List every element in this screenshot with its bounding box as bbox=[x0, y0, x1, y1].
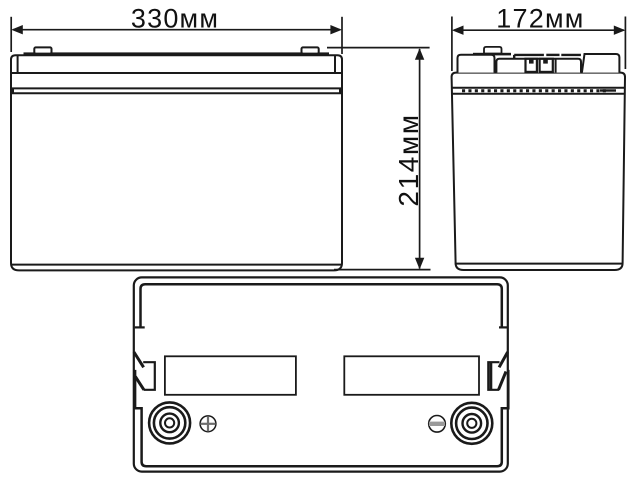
svg-text:330мм: 330мм bbox=[131, 3, 219, 33]
svg-text:172мм: 172мм bbox=[496, 3, 584, 33]
svg-text:214мм: 214мм bbox=[393, 113, 424, 206]
